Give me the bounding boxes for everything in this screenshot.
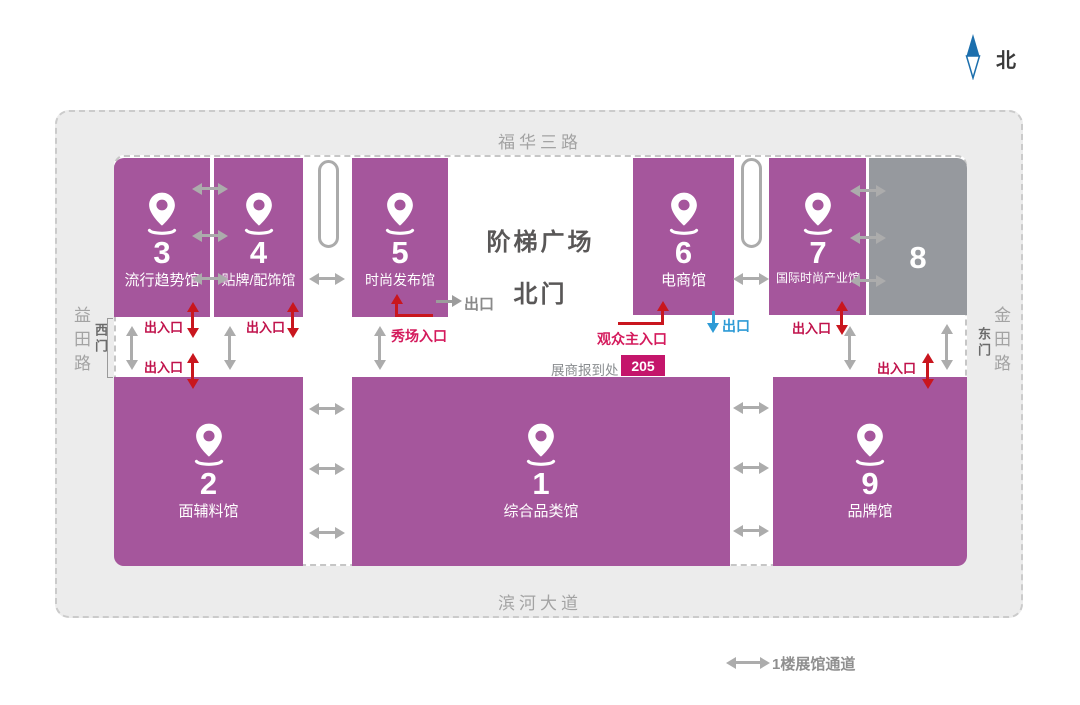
location-pin-icon (849, 421, 891, 468)
hall-4-number: 4 (250, 237, 267, 270)
entrance-arrow (191, 312, 194, 328)
location-pin-icon (188, 421, 230, 468)
road-south: 滨河大道 (0, 589, 1080, 614)
passage-arrow (228, 336, 231, 360)
passage-arrow (202, 277, 218, 280)
location-pin-icon (663, 190, 705, 237)
hall-3-name: 流行趋势馆 (124, 271, 199, 291)
passage-arrow (860, 279, 876, 282)
entrance-arrow (191, 363, 194, 379)
entrance-arrow (840, 311, 843, 325)
hall-8-number: 8 (909, 242, 926, 275)
hall-6-number: 6 (675, 237, 692, 270)
hall-7-number: 7 (809, 237, 826, 270)
passage-arrow (945, 334, 948, 360)
show-entrance-label: 秀场入口 (391, 326, 447, 346)
passage-arrow (743, 277, 759, 280)
location-pin-icon (797, 190, 839, 237)
entrance-arrow (291, 312, 294, 328)
east-gate-label: 东门 (974, 327, 993, 359)
entrance-exit-label: 出入口 (877, 358, 916, 377)
location-pin-icon (238, 190, 280, 237)
compass-north-label: 北 (996, 44, 1016, 73)
passage-arrow (319, 531, 335, 534)
entrance-exit-label: 出入口 (144, 357, 183, 376)
passage-arrow (319, 467, 335, 470)
hall-2-name: 面辅料馆 (178, 502, 238, 522)
entrance-exit-label: 出入口 (246, 317, 285, 336)
exit-arrow (452, 295, 462, 307)
hall-1-name: 综合品类馆 (503, 502, 578, 522)
hall-5-number: 5 (391, 237, 408, 270)
passage-arrow (860, 189, 876, 192)
road-north: 福华三路 (0, 128, 1080, 153)
ramp-capsule (741, 158, 762, 248)
location-pin-icon (379, 190, 421, 237)
hall-9: 9 品牌馆 (773, 377, 967, 566)
show-entrance-arrow (395, 314, 433, 317)
hall-3-number: 3 (153, 237, 170, 270)
hall-7-name: 国际时尚产业馆 (776, 271, 860, 287)
venue-map: 北 福华三路 滨河大道 益田路 金田路 西门 东门 3 流行趋势馆 4 贴牌/配… (0, 0, 1080, 705)
passage-arrow (378, 336, 381, 360)
checkin-room-badge: 205 (621, 355, 665, 376)
plaza-label: 阶梯广场 (448, 222, 633, 257)
location-pin-icon (141, 190, 183, 237)
ramp-capsule (318, 160, 339, 248)
passage-arrow (743, 529, 759, 532)
exit-arrow (436, 300, 452, 303)
passage-arrow (848, 336, 851, 360)
west-gate-bracket (107, 318, 113, 378)
road-west: 益田路 (68, 306, 93, 378)
hall-9-number: 9 (861, 468, 878, 501)
entrance-exit-label: 出入口 (144, 317, 183, 336)
passage-arrow (130, 336, 133, 360)
hall-1: 1 综合品类馆 (352, 377, 730, 566)
exit-arrow-blue (707, 323, 719, 333)
location-pin-icon (520, 421, 562, 468)
passage-arrow (202, 234, 218, 237)
passage-arrow (202, 187, 218, 190)
passage-arrow (860, 236, 876, 239)
passage-arrow (743, 406, 759, 409)
compass-north-icon (962, 32, 984, 85)
entrance-exit-label: 出入口 (792, 318, 831, 337)
main-entrance-arrow (618, 322, 664, 325)
hall-9-name: 品牌馆 (847, 502, 892, 522)
checkin-label: 展商报到处 (551, 359, 619, 379)
entrance-arrow (926, 363, 929, 379)
passage-arrow (319, 407, 335, 410)
passage-arrow (319, 277, 335, 280)
hall-2-number: 2 (200, 468, 217, 501)
exit-label: 出口 (464, 293, 494, 314)
hall-1-number: 1 (532, 468, 549, 501)
hall-2: 2 面辅料馆 (114, 377, 303, 566)
hall-6-name: 电商馆 (661, 271, 706, 291)
hall-4-name: 贴牌/配饰馆 (222, 271, 296, 289)
hall-5-name: 时尚发布馆 (365, 271, 435, 289)
exit-blue-label: 出口 (722, 316, 750, 336)
passage-arrow (743, 466, 759, 469)
legend-passage-label: 1楼展馆通道 (772, 653, 855, 674)
main-entrance-label: 观众主入口 (597, 329, 667, 349)
hall-6: 6 电商馆 (633, 158, 734, 315)
legend-passage-arrow (736, 661, 760, 664)
